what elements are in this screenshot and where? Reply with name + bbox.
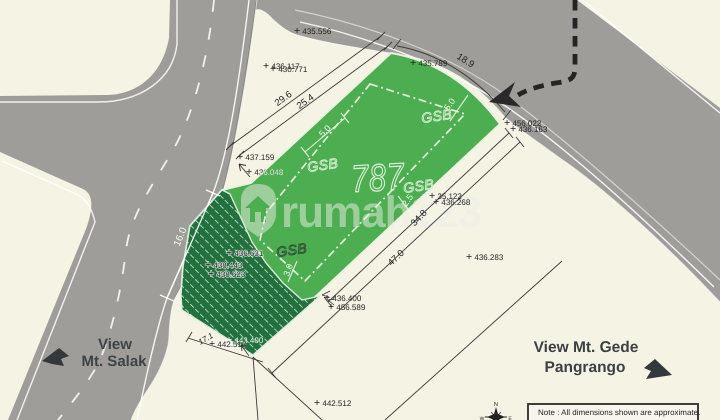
svg-text:+ 436.163: + 436.163 xyxy=(510,123,548,135)
svg-text:+ 435.556: + 435.556 xyxy=(294,25,332,37)
svg-text:787: 787 xyxy=(350,156,406,201)
svg-text:+ 456.589: + 456.589 xyxy=(328,301,366,313)
svg-text:View Mt. Gede: View Mt. Gede xyxy=(534,339,639,356)
svg-text:W: W xyxy=(480,416,485,420)
svg-text:+ 436.283: + 436.283 xyxy=(466,251,504,263)
svg-text:+ 442.512: + 442.512 xyxy=(314,397,352,409)
svg-text:+ 430.771: + 430.771 xyxy=(270,63,308,75)
svg-text:Pangrango: Pangrango xyxy=(545,359,626,376)
svg-text:+ 438.623: + 438.623 xyxy=(208,268,246,280)
svg-text:Mt. Salak: Mt. Salak xyxy=(81,353,147,370)
svg-text:Note : All dimensions shown ar: Note : All dimensions shown are approxim… xyxy=(538,408,700,417)
svg-text:View: View xyxy=(98,336,132,353)
svg-text:+ 436.631: + 436.631 xyxy=(226,247,264,259)
svg-text:+ 437.159: + 437.159 xyxy=(237,151,275,163)
svg-text:+ 436.268: + 436.268 xyxy=(433,196,471,208)
svg-text:+ 435.789: + 435.789 xyxy=(410,57,448,69)
